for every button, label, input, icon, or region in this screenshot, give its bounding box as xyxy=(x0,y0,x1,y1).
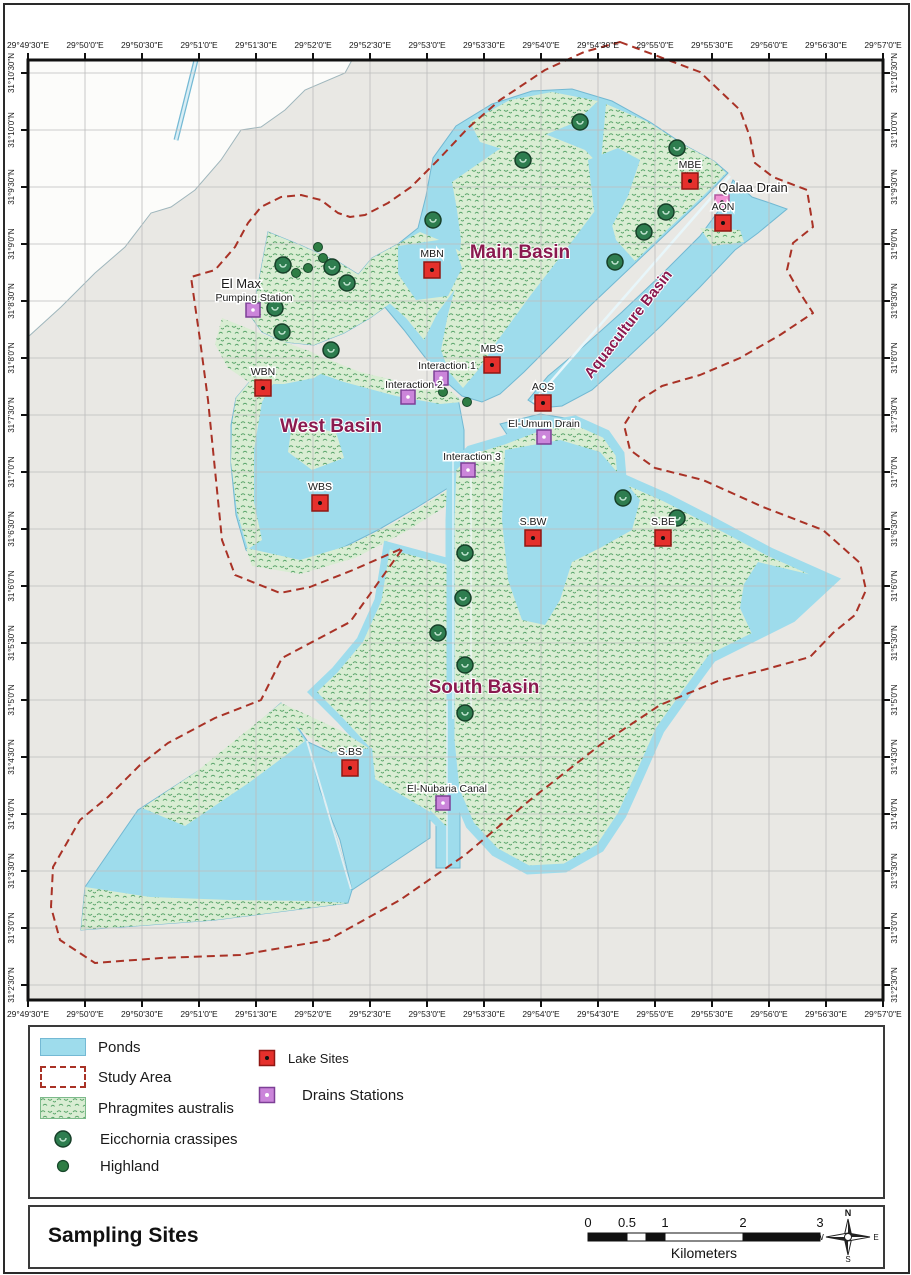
axis-label-lon-bottom: 29°54'30"E xyxy=(577,1009,619,1019)
eicchornia-marker xyxy=(457,545,473,561)
legend-label: Drains Stations xyxy=(302,1087,404,1104)
legend-item-ponds: Ponds xyxy=(40,1038,141,1056)
axis-label-lat-left: 31°10'0"N xyxy=(7,112,16,148)
lake-site-wbs xyxy=(312,495,328,511)
axis-label-lon-top: 29°56'0"E xyxy=(750,40,788,50)
axis-label-lon-bottom: 29°56'30"E xyxy=(805,1009,847,1019)
axis-label-lat-left: 31°4'30"N xyxy=(7,739,16,775)
eicchornia-marker xyxy=(457,657,473,673)
scale-tick-label: 1 xyxy=(661,1215,668,1230)
axis-label-lon-top: 29°52'30"E xyxy=(349,40,391,50)
lake-site-label: S.BW xyxy=(520,516,547,528)
lake-site-icon xyxy=(258,1049,276,1067)
drain-station-el-max xyxy=(246,303,260,317)
highland-marker xyxy=(304,264,313,273)
axis-label-lat-left: 31°6'0"N xyxy=(7,570,16,601)
drain-station-interaction-3 xyxy=(461,463,475,477)
eicchornia-marker xyxy=(636,224,652,240)
drain-station-label: Interaction 2 xyxy=(385,379,443,391)
phragmites-swatch xyxy=(40,1097,86,1119)
axis-label-lat-left: 31°5'30"N xyxy=(7,625,16,661)
axis-label-lon-top: 29°53'30"E xyxy=(463,40,505,50)
axis-label-lon-top: 29°55'30"E xyxy=(691,40,733,50)
drain-station-el-umum-drain xyxy=(537,430,551,444)
legend-label: Phragmites australis xyxy=(98,1100,234,1117)
scale-unit-label: Kilometers xyxy=(671,1245,737,1261)
axis-label-lon-bottom: 29°56'0"E xyxy=(750,1009,788,1019)
axis-label-lat-left: 31°8'30"N xyxy=(7,283,16,319)
axis-label-lat-right: 31°7'0"N xyxy=(890,456,899,487)
axis-label-lat-left: 31°3'30"N xyxy=(7,853,16,889)
drain-station-el-nubaria-canal xyxy=(436,796,450,810)
axis-label-lat-left: 31°9'0"N xyxy=(7,228,16,259)
eicchornia-marker xyxy=(615,490,631,506)
axis-label-lat-left: 31°6'30"N xyxy=(7,511,16,547)
axis-label-lon-bottom: 29°50'30"E xyxy=(121,1009,163,1019)
legend-label: Eicchornia crassipes xyxy=(100,1131,238,1148)
map-canvas: Qalaa DrainEl MaxPumping StationInteract… xyxy=(0,0,911,1022)
drain-station-interaction-2 xyxy=(401,390,415,404)
highland-marker xyxy=(463,398,472,407)
eicchornia-marker xyxy=(455,590,471,606)
axis-label-lat-right: 31°3'0"N xyxy=(890,912,899,943)
axis-label-lat-right: 31°6'30"N xyxy=(890,511,899,547)
lake-site-s-bw xyxy=(525,530,541,546)
axis-label-lon-bottom: 29°53'0"E xyxy=(408,1009,446,1019)
axis-label-lat-right: 31°7'30"N xyxy=(890,397,899,433)
lake-site-wbn xyxy=(255,380,271,396)
lake-site-s-be xyxy=(655,530,671,546)
legend-item-lake-sites: Lake Sites xyxy=(258,1049,349,1067)
scale-and-compass: 00.5123Kilometers N S W E xyxy=(30,1207,881,1263)
axis-label-lon-bottom: 29°49'30"E xyxy=(7,1009,49,1019)
drain-station-label: Interaction 1 xyxy=(418,360,476,372)
axis-label-lat-right: 31°9'0"N xyxy=(890,228,899,259)
axis-label-lon-bottom: 29°53'30"E xyxy=(463,1009,505,1019)
lake-site-label: S.BE xyxy=(651,516,675,528)
axis-label-lon-top: 29°50'30"E xyxy=(121,40,163,50)
axis-label-lon-bottom: 29°54'0"E xyxy=(522,1009,560,1019)
axis-label-lat-left: 31°10'30"N xyxy=(7,53,16,93)
lake-site-label: WBN xyxy=(251,366,276,378)
axis-label-lon-bottom: 29°50'0"E xyxy=(66,1009,104,1019)
scale-bar: 00.5123Kilometers xyxy=(584,1215,823,1261)
lake-site-mbs xyxy=(484,357,500,373)
lake-site-label: S.BS xyxy=(338,746,362,758)
basin-label: South Basin xyxy=(429,677,540,698)
axis-label-lat-right: 31°4'30"N xyxy=(890,739,899,775)
legend-label: Ponds xyxy=(98,1039,141,1056)
axis-label-lat-right: 31°5'0"N xyxy=(890,684,899,715)
eicchornia-marker xyxy=(669,140,685,156)
eicchornia-marker xyxy=(572,114,588,130)
drain-station-label: Qalaa Drain xyxy=(718,180,787,195)
compass-n-label: N xyxy=(845,1208,852,1218)
axis-label-lon-top: 29°54'0"E xyxy=(522,40,560,50)
axis-label-lon-bottom: 29°52'30"E xyxy=(349,1009,391,1019)
compass-s-label: S xyxy=(845,1255,850,1263)
legend-item-eicchornia: Eicchornia crassipes xyxy=(52,1128,238,1150)
eicchornia-marker xyxy=(430,625,446,641)
eicchornia-marker xyxy=(515,152,531,168)
scale-tick-label: 2 xyxy=(739,1215,746,1230)
compass-rose: N S W E xyxy=(816,1208,878,1263)
drain-station-icon xyxy=(258,1086,276,1104)
legend-box: Ponds Study Area Phragmites australis Ei… xyxy=(28,1025,885,1199)
axis-label-lat-left: 31°4'0"N xyxy=(7,798,16,829)
axis-label-lon-top: 29°51'0"E xyxy=(180,40,218,50)
eicchornia-marker xyxy=(457,705,473,721)
map-figure-page: Qalaa DrainEl MaxPumping StationInteract… xyxy=(0,0,911,1275)
axis-label-lon-bottom: 29°55'30"E xyxy=(691,1009,733,1019)
eicchornia-marker xyxy=(339,275,355,291)
lake-site-mbn xyxy=(424,262,440,278)
legend-label: Lake Sites xyxy=(288,1051,349,1066)
highland-marker xyxy=(319,254,328,263)
lake-site-label: MBS xyxy=(481,343,504,355)
drain-station-label: El Max xyxy=(221,276,261,291)
lake-site-label: WBS xyxy=(308,481,332,493)
legend-item-phragmites: Phragmites australis xyxy=(40,1097,234,1119)
highland-marker xyxy=(314,243,323,252)
lake-site-mbe xyxy=(682,173,698,189)
axis-label-lon-top: 29°56'30"E xyxy=(805,40,847,50)
drain-station-label: El-Nubaria Canal xyxy=(407,783,487,795)
axis-label-lat-left: 31°5'0"N xyxy=(7,684,16,715)
axis-label-lat-right: 31°8'0"N xyxy=(890,342,899,373)
lake-site-s-bs xyxy=(342,760,358,776)
lake-site-label: AQS xyxy=(532,381,554,393)
eicchornia-marker xyxy=(658,204,674,220)
highland-marker xyxy=(292,269,301,278)
axis-label-lat-right: 31°9'30"N xyxy=(890,169,899,205)
scale-tick-label: 0.5 xyxy=(618,1215,636,1230)
eicchornia-marker xyxy=(607,254,623,270)
legend-label: Study Area xyxy=(98,1069,171,1086)
axis-label-lon-top: 29°52'0"E xyxy=(294,40,332,50)
axis-label-lon-top: 29°50'0"E xyxy=(66,40,104,50)
axis-label-lon-bottom: 29°51'30"E xyxy=(235,1009,277,1019)
axis-label-lat-left: 31°8'0"N xyxy=(7,342,16,373)
eicchornia-icon xyxy=(52,1128,74,1150)
axis-label-lat-right: 31°10'0"N xyxy=(890,112,899,148)
basin-label: West Basin xyxy=(280,416,382,437)
scale-tick-label: 3 xyxy=(816,1215,823,1230)
drain-station-label: Pumping Station xyxy=(215,292,292,304)
axis-label-lat-left: 31°7'30"N xyxy=(7,397,16,433)
axis-label-lon-bottom: 29°57'0"E xyxy=(864,1009,902,1019)
lake-site-aqn xyxy=(715,215,731,231)
axis-label-lon-top: 29°51'30"E xyxy=(235,40,277,50)
axis-label-lat-right: 31°10'30"N xyxy=(890,53,899,93)
axis-label-lon-top: 29°55'0"E xyxy=(636,40,674,50)
compass-e-label: E xyxy=(873,1233,878,1242)
axis-label-lon-top: 29°54'30"E xyxy=(577,40,619,50)
legend-item-study-area: Study Area xyxy=(40,1066,171,1088)
axis-label-lat-left: 31°7'0"N xyxy=(7,456,16,487)
axis-label-lat-left: 31°9'30"N xyxy=(7,169,16,205)
eicchornia-marker xyxy=(274,324,290,340)
drain-station-label: El-Umum Drain xyxy=(508,418,580,430)
compass-w-label: W xyxy=(816,1233,824,1242)
lake-site-label: AQN xyxy=(712,201,735,213)
drain-station-label: Interaction 3 xyxy=(443,451,501,463)
axis-label-lon-top: 29°57'0"E xyxy=(864,40,902,50)
axis-label-lon-bottom: 29°55'0"E xyxy=(636,1009,674,1019)
eicchornia-marker xyxy=(425,212,441,228)
axis-label-lat-left: 31°2'30"N xyxy=(7,967,16,1003)
eicchornia-marker xyxy=(275,257,291,273)
legend-label: Highland xyxy=(100,1158,159,1175)
axis-label-lat-right: 31°6'0"N xyxy=(890,570,899,601)
axis-label-lon-top: 29°53'0"E xyxy=(408,40,446,50)
legend-item-highland: Highland xyxy=(54,1157,159,1175)
highland-icon xyxy=(54,1157,72,1175)
lake-site-label: MBN xyxy=(420,248,443,260)
axis-label-lat-right: 31°3'30"N xyxy=(890,853,899,889)
basin-label: Main Basin xyxy=(470,242,570,263)
scale-tick-label: 0 xyxy=(584,1215,591,1230)
axis-label-lat-right: 31°5'30"N xyxy=(890,625,899,661)
lake-site-aqs xyxy=(535,395,551,411)
axis-label-lat-right: 31°4'0"N xyxy=(890,798,899,829)
axis-label-lat-left: 31°3'0"N xyxy=(7,912,16,943)
eicchornia-marker xyxy=(323,342,339,358)
study-area-swatch xyxy=(40,1066,86,1088)
axis-label-lon-bottom: 29°52'0"E xyxy=(294,1009,332,1019)
axis-label-lon-bottom: 29°51'0"E xyxy=(180,1009,218,1019)
legend-item-drains-stations: Drains Stations xyxy=(258,1086,404,1104)
lake-site-label: MBE xyxy=(679,159,702,171)
axis-label-lon-top: 29°49'30"E xyxy=(7,40,49,50)
axis-label-lat-right: 31°2'30"N xyxy=(890,967,899,1003)
ponds-swatch xyxy=(40,1038,86,1056)
axis-label-lat-right: 31°8'30"N xyxy=(890,283,899,319)
